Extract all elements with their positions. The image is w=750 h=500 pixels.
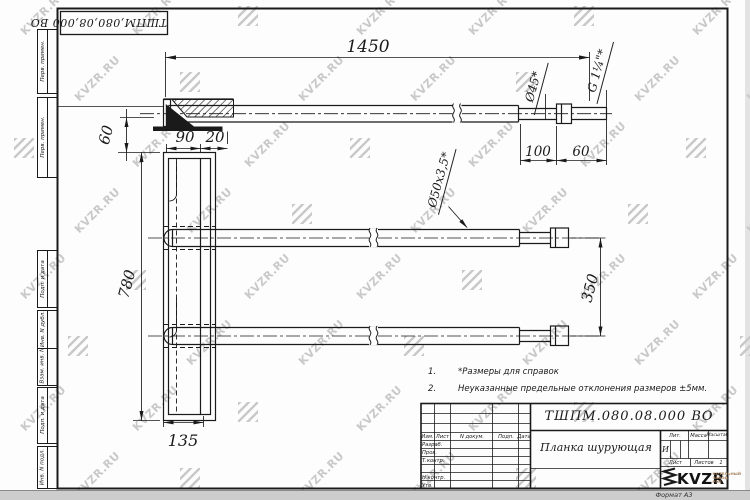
tb-sheet-label: Лист xyxy=(662,460,689,466)
dim-20: 20 xyxy=(198,128,232,146)
side-label-podp-data-1: Подп. и дата xyxy=(40,252,46,306)
tb-scale-label: Масштаб xyxy=(706,433,729,438)
note-1-text: *Размеры для справок xyxy=(458,367,559,377)
scan-edge-bottom xyxy=(0,490,750,500)
note-2-number: 2. xyxy=(428,384,448,394)
tb-header-podp: Подп. xyxy=(493,434,519,440)
tb-header-data: Дата xyxy=(517,434,531,440)
label-dia-45: Ø45* xyxy=(519,59,548,115)
tb-header-ndokum: N докум. xyxy=(451,434,493,440)
kvzr-logo-subtext: КОТЕЛЬНЫЙ ЗАВОД РЭП xyxy=(713,472,728,485)
doc-number-top: ТШПМ,080,08,000 ВО xyxy=(60,16,167,29)
dim-135: 135 xyxy=(160,431,206,450)
tb-lit-label: Лит. xyxy=(664,433,686,439)
dim-350: 350 xyxy=(576,266,604,309)
tb-row-nkontr: Н.контр. xyxy=(422,475,452,481)
format-label: Формат А3 xyxy=(645,491,703,499)
dim-90: 90 xyxy=(168,128,202,146)
note-1-number: 1. xyxy=(428,367,448,377)
dim-780: 780 xyxy=(113,262,141,305)
dim-60-right: 60 xyxy=(563,144,599,160)
note-2-text: Неуказанные предельные отклонения размер… xyxy=(458,384,707,394)
side-label-perv-primen-1: Перв. примен. xyxy=(40,31,46,91)
side-label-perv-primen-2: Перв. примен. xyxy=(40,107,46,167)
dim-100: 100 xyxy=(520,144,556,160)
tb-sheets-label: Листов xyxy=(691,460,717,466)
side-label-vzam-inv: Взам. инв. N xyxy=(40,349,46,384)
tb-row-utv: Утв. xyxy=(422,483,452,489)
side-label-inv-podl: Инв. N подл. xyxy=(40,447,46,488)
tb-row-razrab: Разраб. xyxy=(422,442,452,448)
tb-row-prov: Пров. xyxy=(422,450,452,456)
tb-header-izm: Изм. xyxy=(420,434,435,440)
text-layer: ТШПМ,080,08,000 ВО Перв. примен. Перв. п… xyxy=(0,0,750,500)
dim-60-left: 60 xyxy=(93,115,120,154)
dim-1450: 1450 xyxy=(318,37,418,57)
side-label-inv-dubl: Инв. N дубл. xyxy=(40,311,46,347)
label-thread-g114: G 1¼"* xyxy=(582,38,614,104)
part-name: Планка шурующая xyxy=(534,441,658,454)
tb-header-list: Лист xyxy=(434,434,451,440)
label-dia-50x35: Ø50x3,5* xyxy=(423,145,456,215)
tb-row-tkontr: Т.контр. xyxy=(422,458,452,464)
tb-lit-value: И xyxy=(660,445,671,454)
tb-sheets-value: 1 xyxy=(716,460,726,466)
drawing-sheet: KVZR.RUKVZR.RUKVZR.RUKVZR.RUKVZR.RUKVZR.… xyxy=(0,0,750,500)
side-label-podp-data-2: Подп. и дата xyxy=(40,388,46,442)
title-doc-number: ТШПМ.080.08.000 ВО xyxy=(534,409,724,424)
